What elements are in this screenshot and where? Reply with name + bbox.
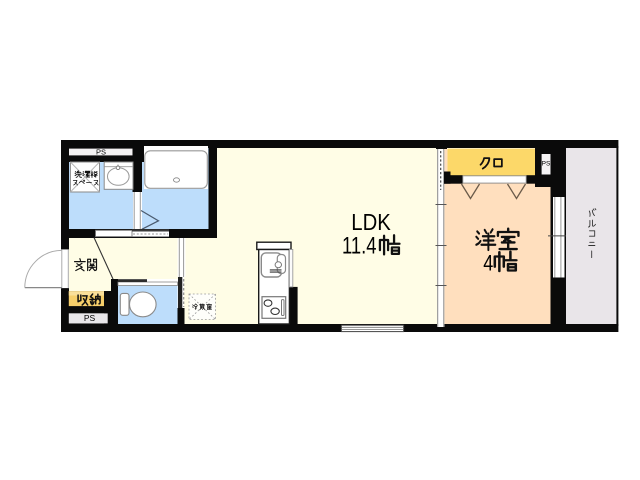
svg-text:11.4: 11.4 [342,233,377,260]
svg-text:PS: PS [96,148,106,157]
svg-text:PS: PS [84,313,96,323]
svg-text:PS: PS [542,161,551,168]
svg-text:LDK: LDK [351,209,391,235]
svg-text:4: 4 [483,251,493,276]
